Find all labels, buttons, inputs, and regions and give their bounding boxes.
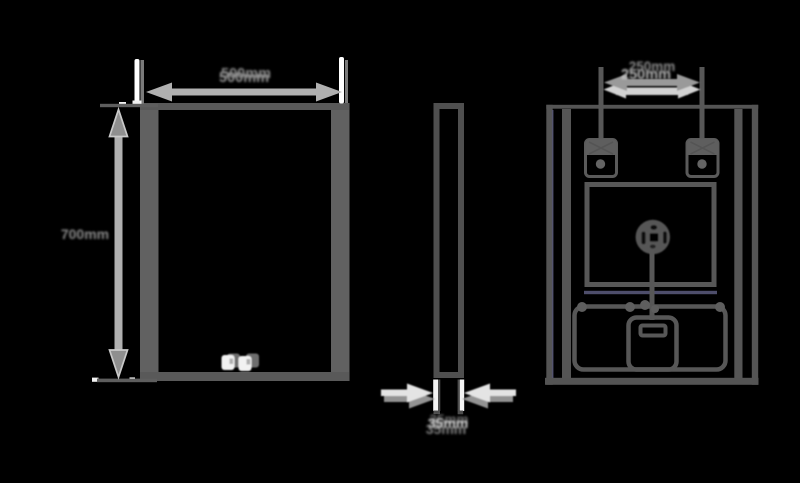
svg-text:35mm: 35mm [426, 421, 466, 437]
svg-text:250mm: 250mm [629, 59, 676, 74]
svg-text:700mm: 700mm [61, 226, 109, 242]
svg-text:500mm: 500mm [221, 66, 271, 82]
